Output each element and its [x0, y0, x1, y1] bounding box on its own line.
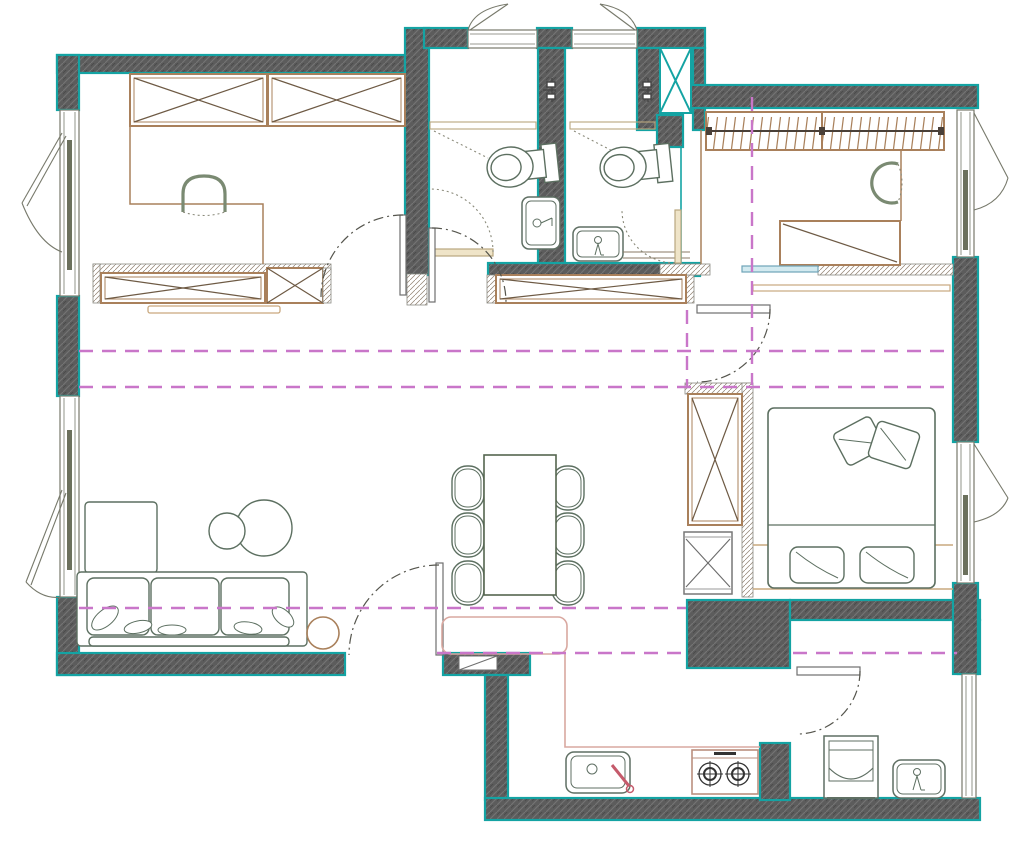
wall-corner-nw	[57, 55, 79, 110]
desk	[130, 126, 263, 264]
wall-kitchen-laundry-block	[687, 600, 790, 668]
laundry-room	[797, 667, 945, 798]
partition-bedroom-side	[742, 383, 753, 597]
duct-shaft	[660, 48, 691, 113]
partition-hall-cap-right	[686, 275, 694, 303]
partition-closet-bottom-left	[660, 264, 710, 275]
wall-bottom-left	[57, 653, 345, 675]
wall-top-right	[690, 85, 978, 108]
bedroom-low-cabinet	[684, 532, 732, 594]
living-room	[77, 500, 497, 670]
wall-laundry-left	[760, 743, 790, 800]
partition-tv-return	[93, 264, 100, 303]
wall-bath-top-1	[424, 28, 468, 48]
bath2-door-leaf	[675, 210, 681, 263]
wall-bath1-left	[405, 28, 429, 275]
window-bath2-top	[572, 4, 637, 48]
closet-chair	[872, 163, 902, 203]
hallway	[321, 215, 686, 303]
washbasin-1	[522, 197, 560, 249]
desk-chair	[183, 176, 225, 216]
wall-laundry-top	[790, 600, 980, 620]
hanging-wardrobe	[706, 112, 944, 150]
kitchen-sink	[566, 752, 634, 793]
wall-right-lower	[953, 583, 978, 674]
window-bath1-top	[468, 4, 537, 48]
shower-screen-1	[430, 122, 536, 129]
bedroom-wardrobe-column	[688, 394, 742, 525]
partition-entry-stub-cap	[407, 274, 427, 305]
bath1-door-leaf	[430, 249, 493, 256]
window-bedroom-right	[957, 442, 1008, 583]
partition-hall-cap-left	[487, 275, 496, 303]
wardrobe-x-cabinet-2	[268, 74, 405, 126]
window-master-left	[22, 110, 79, 296]
window-laundry-right	[962, 674, 976, 798]
vanity-basin-2	[573, 227, 623, 261]
chair	[452, 513, 484, 557]
entry-door-swing-left	[321, 215, 403, 297]
wall-left-mid	[57, 296, 79, 396]
toilet-2	[598, 142, 673, 189]
coffee-table-small	[209, 513, 245, 549]
window-living-left	[26, 396, 79, 597]
dresser	[780, 221, 900, 265]
wardrobe-x-cabinet-1	[130, 74, 267, 126]
cooktop	[692, 750, 758, 794]
wall-bottom-long	[485, 798, 980, 820]
washing-machine	[824, 736, 878, 798]
dining-rug	[442, 617, 567, 654]
bedroom-door-swing	[697, 309, 770, 382]
master-suite	[101, 74, 405, 313]
double-bed	[768, 408, 935, 588]
floor-plan-canvas: Apartment renovation floor plan drawing	[0, 0, 1024, 843]
entry-door-leaf-left	[400, 215, 406, 295]
dining-area	[442, 455, 584, 654]
laundry-door-swing	[797, 671, 860, 734]
wall-kitchen-left	[485, 675, 508, 800]
wall-niche	[459, 656, 497, 670]
tv-shelf	[148, 306, 280, 313]
hall-storage-cabinet	[496, 275, 686, 303]
chair	[452, 466, 484, 510]
bath2-door-swing	[622, 210, 675, 263]
floor-plan-drawing: Apartment renovation floor plan drawing	[0, 0, 1024, 843]
bath1-door-swing	[430, 189, 493, 252]
tv-console	[101, 273, 265, 303]
wall-bath-top-2	[537, 28, 572, 48]
closet-sliding-door	[742, 266, 818, 272]
wall-right-mid	[953, 257, 978, 442]
kitchen	[565, 653, 760, 794]
sofa-base	[89, 637, 289, 646]
dining-table	[484, 455, 556, 595]
bedroom	[684, 305, 953, 594]
toilet-1	[485, 142, 560, 189]
terrace-door-swing	[349, 565, 439, 655]
shower-door-1	[434, 131, 488, 158]
closet-track	[753, 285, 950, 291]
wall-bath2-right	[657, 115, 683, 147]
laundry-door-leaf	[797, 667, 860, 675]
wall-top-left	[57, 55, 405, 73]
tv-cabinet-2	[267, 268, 331, 303]
chair	[452, 561, 484, 605]
wall-bath-top-3	[637, 28, 705, 48]
side-table	[307, 617, 339, 649]
sofa-chaise	[85, 502, 157, 573]
bedroom-door-leaf	[697, 305, 770, 313]
laundry-sink	[893, 760, 945, 798]
window-closet-right	[957, 110, 1008, 257]
entry-door-leaf-right	[429, 228, 435, 302]
